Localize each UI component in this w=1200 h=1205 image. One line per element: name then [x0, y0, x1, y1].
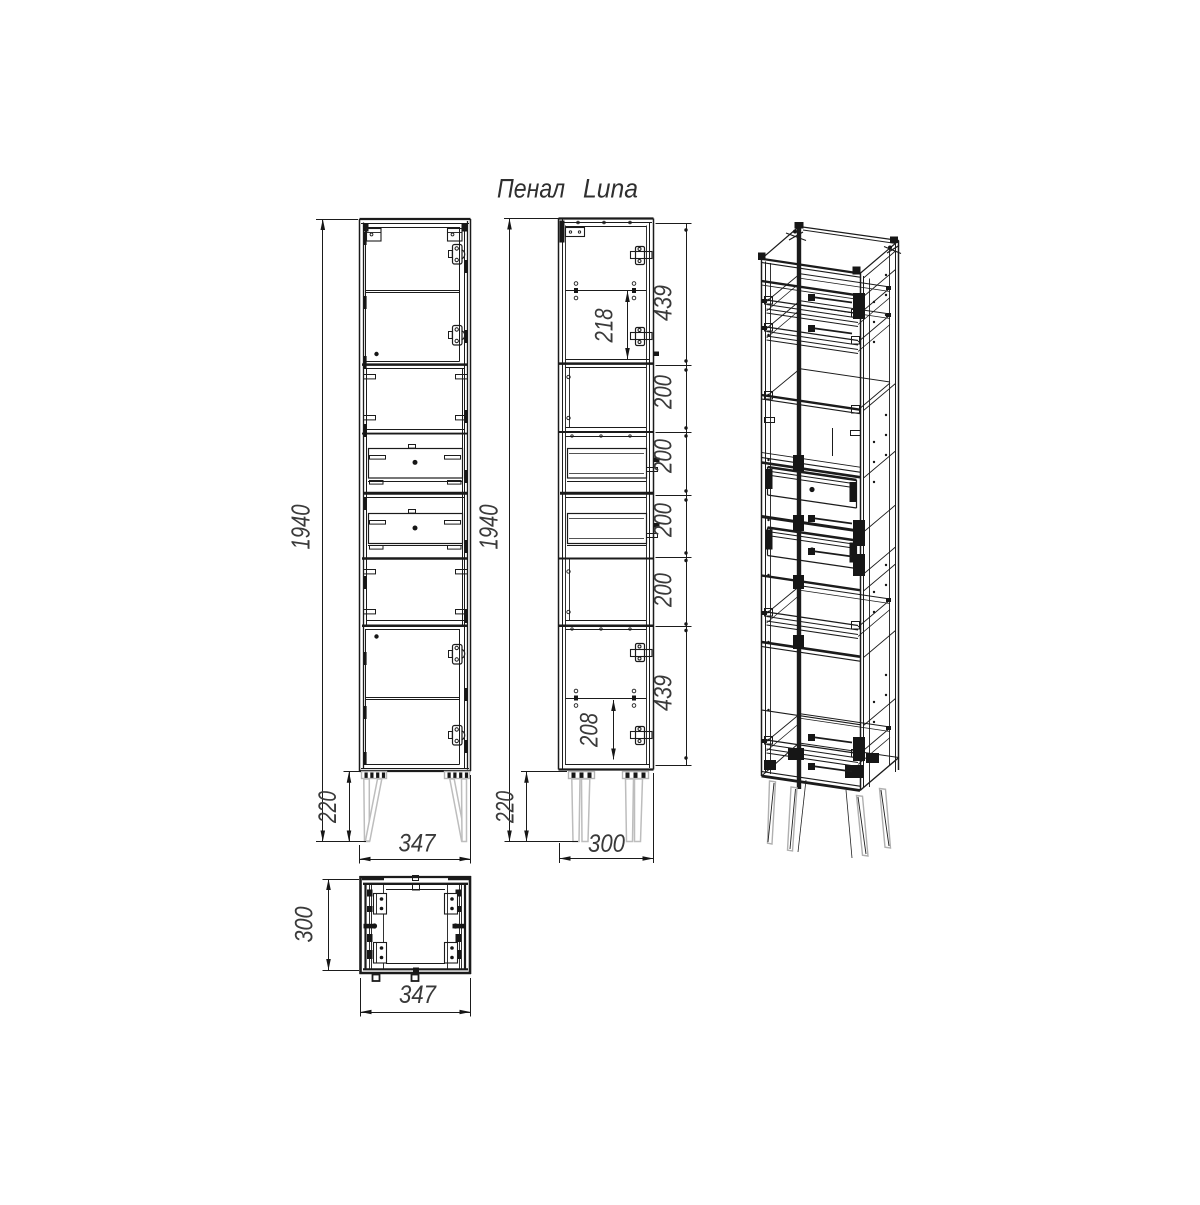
svg-text:200: 200 — [650, 439, 678, 474]
svg-text:218: 218 — [591, 308, 619, 343]
svg-text:Luna: Luna — [583, 174, 638, 204]
svg-text:200: 200 — [650, 375, 678, 410]
svg-text:347: 347 — [399, 830, 437, 858]
svg-text:439: 439 — [650, 675, 678, 711]
svg-text:300: 300 — [588, 830, 625, 858]
svg-text:200: 200 — [650, 573, 678, 608]
svg-text:Пенал: Пенал — [497, 174, 565, 204]
svg-text:439: 439 — [650, 285, 678, 321]
svg-text:220: 220 — [314, 791, 342, 824]
svg-text:300: 300 — [291, 906, 319, 942]
svg-text:347: 347 — [399, 981, 437, 1009]
svg-text:200: 200 — [650, 503, 678, 538]
svg-text:220: 220 — [492, 791, 520, 824]
svg-text:1940: 1940 — [474, 504, 504, 549]
svg-text:208: 208 — [576, 713, 604, 748]
svg-text:1940: 1940 — [286, 504, 316, 549]
